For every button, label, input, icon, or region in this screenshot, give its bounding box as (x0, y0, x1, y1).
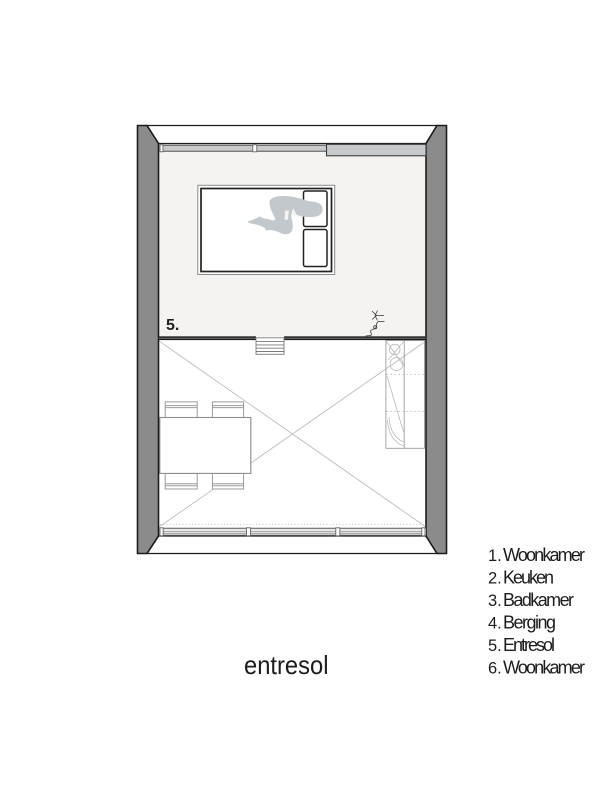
svg-text:5.: 5. (166, 317, 179, 334)
svg-text:Woonkamer: Woonkamer (503, 545, 585, 565)
svg-text:5.: 5. (488, 637, 502, 655)
svg-text:Woonkamer: Woonkamer (503, 658, 585, 678)
svg-text:entresol: entresol (244, 650, 329, 680)
svg-text:3.: 3. (488, 592, 502, 610)
svg-text:Badkamer: Badkamer (503, 590, 574, 610)
svg-text:Berging: Berging (503, 613, 556, 633)
svg-text:4.: 4. (488, 615, 502, 633)
svg-text:Entresol: Entresol (503, 635, 555, 655)
svg-text:6.: 6. (488, 660, 502, 678)
svg-text:Keuken: Keuken (503, 568, 554, 588)
svg-text:1.: 1. (488, 547, 502, 565)
svg-text:2.: 2. (488, 570, 502, 588)
